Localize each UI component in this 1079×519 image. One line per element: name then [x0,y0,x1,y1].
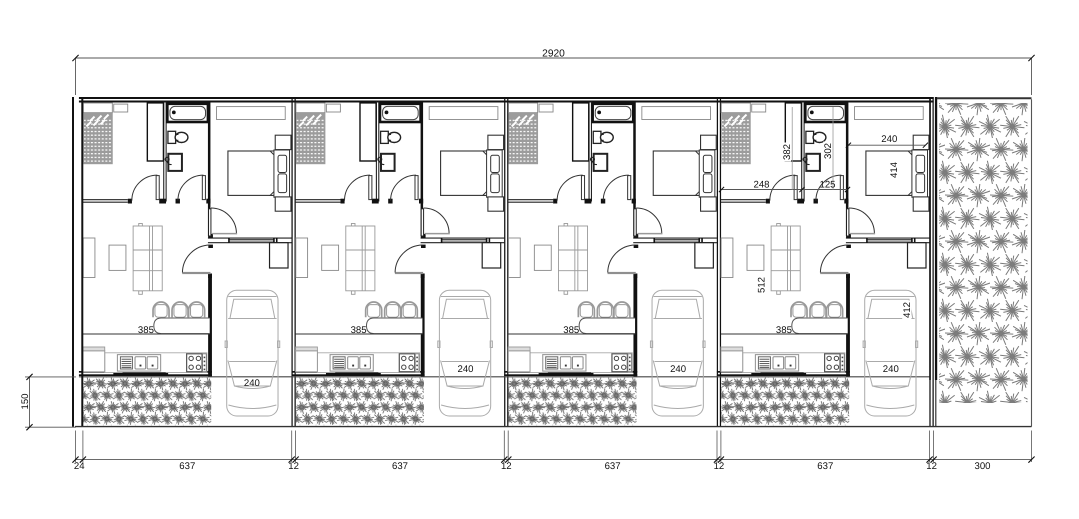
svg-text:240: 240 [881,134,897,145]
svg-text:240: 240 [883,364,899,375]
svg-text:382: 382 [782,144,793,160]
svg-text:12: 12 [926,461,937,472]
svg-text:637: 637 [392,461,408,472]
svg-text:414: 414 [889,161,900,178]
svg-text:12: 12 [288,461,299,472]
svg-text:300: 300 [974,461,990,472]
svg-text:240: 240 [670,364,686,375]
svg-text:12: 12 [714,461,725,472]
svg-text:125: 125 [820,180,836,191]
svg-text:637: 637 [817,461,833,472]
svg-text:637: 637 [605,461,621,472]
svg-text:24: 24 [74,461,85,472]
svg-text:248: 248 [754,180,770,191]
svg-text:302: 302 [823,143,834,159]
svg-text:12: 12 [501,461,512,472]
svg-text:240: 240 [457,364,473,375]
svg-text:412: 412 [902,302,913,318]
svg-text:240: 240 [244,378,260,389]
svg-text:512: 512 [756,277,767,293]
svg-text:637: 637 [179,461,195,472]
